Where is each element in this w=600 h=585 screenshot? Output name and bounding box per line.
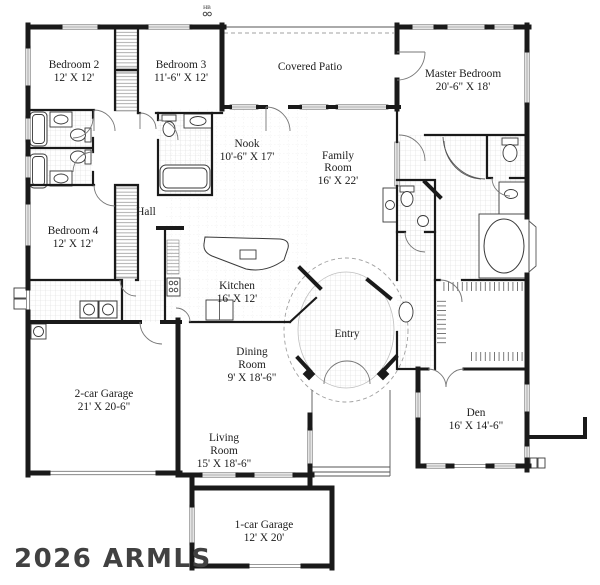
svg-text:12' X 12': 12' X 12' (53, 238, 93, 250)
svg-text:16' X 22': 16' X 22' (318, 175, 358, 187)
closet-rod-ticks (442, 282, 524, 291)
sink (505, 190, 518, 199)
svg-text:1-car Garage: 1-car Garage (235, 519, 294, 531)
toilet (71, 151, 86, 163)
water-heater (31, 324, 46, 339)
svg-text:20'-6" X 18': 20'-6" X 18' (436, 81, 491, 93)
room-label-kitchen: Kitchen 16' X 12' (217, 280, 257, 305)
svg-text:Room: Room (324, 162, 352, 174)
room-label-2-car-garage: 2-car Garage 21' X 20-6" (75, 388, 134, 413)
svg-text:Bedroom 3: Bedroom 3 (156, 59, 207, 71)
svg-text:Room: Room (238, 359, 266, 371)
svg-text:Dining: Dining (236, 346, 268, 358)
svg-text:16' X 14'-6": 16' X 14'-6" (449, 420, 504, 432)
laundry-appliances (80, 301, 117, 318)
svg-text:Den: Den (467, 407, 486, 419)
svg-text:21' X 20-6": 21' X 20-6" (78, 401, 130, 413)
room-label-hall: Hall (136, 206, 155, 218)
toilet (401, 192, 413, 207)
floor-plan-drawing: Bedroom 2 12' X 12' Bedroom 3 11'-6" X 1… (0, 0, 600, 585)
svg-text:10'-6" X 17': 10'-6" X 17' (220, 151, 275, 163)
pedestal-sink (418, 216, 429, 227)
floor-plan-page: Bedroom 2 12' X 12' Bedroom 3 11'-6" X 1… (0, 0, 600, 585)
sink (54, 115, 68, 124)
svg-text:12' X 20': 12' X 20' (244, 532, 284, 544)
master-tub (484, 219, 524, 273)
svg-text:9' X 18'-6": 9' X 18'-6" (228, 372, 277, 384)
range (167, 278, 180, 296)
toilet-tank (502, 138, 518, 145)
svg-text:Kitchen: Kitchen (219, 280, 255, 292)
hose-bib-label: HB (203, 5, 211, 11)
room-label-master-bedroom: Master Bedroom 20'-6" X 18' (425, 68, 501, 93)
room-label-covered-patio: Covered Patio (278, 61, 343, 73)
watermark-text: 2026 ARMLS (14, 544, 212, 574)
svg-text:Nook: Nook (234, 138, 259, 150)
svg-text:Hall: Hall (136, 206, 155, 218)
svg-text:Entry: Entry (334, 328, 359, 340)
sink (190, 117, 206, 126)
svg-text:15' X 18'-6": 15' X 18'-6" (197, 458, 252, 470)
island-sink (240, 250, 256, 259)
room-label-bedroom4: Bedroom 4 12' X 12' (48, 225, 99, 250)
toilet-tank (162, 115, 176, 121)
coat-niche-fixture (399, 302, 413, 322)
svg-text:Master Bedroom: Master Bedroom (425, 68, 501, 80)
svg-text:2-car Garage: 2-car Garage (75, 388, 134, 400)
media-niche (383, 188, 397, 222)
toilet (503, 145, 517, 162)
side-door (26, 288, 29, 312)
room-label-entry: Entry (334, 328, 359, 340)
sink (54, 174, 68, 183)
svg-text:16' X 12': 16' X 12' (217, 293, 257, 305)
room-label-bedroom3: Bedroom 3 11'-6" X 12' (154, 59, 208, 84)
svg-text:12' X 12': 12' X 12' (54, 72, 94, 84)
svg-text:Bedroom 2: Bedroom 2 (49, 59, 100, 71)
svg-text:Room: Room (210, 445, 238, 457)
svg-text:Covered Patio: Covered Patio (278, 61, 343, 73)
svg-text:11'-6" X 12': 11'-6" X 12' (154, 72, 208, 84)
room-label-bedroom2: Bedroom 2 12' X 12' (49, 59, 100, 84)
svg-text:Bedroom 4: Bedroom 4 (48, 225, 99, 237)
svg-text:Living: Living (209, 432, 239, 444)
svg-text:Family: Family (322, 150, 354, 162)
